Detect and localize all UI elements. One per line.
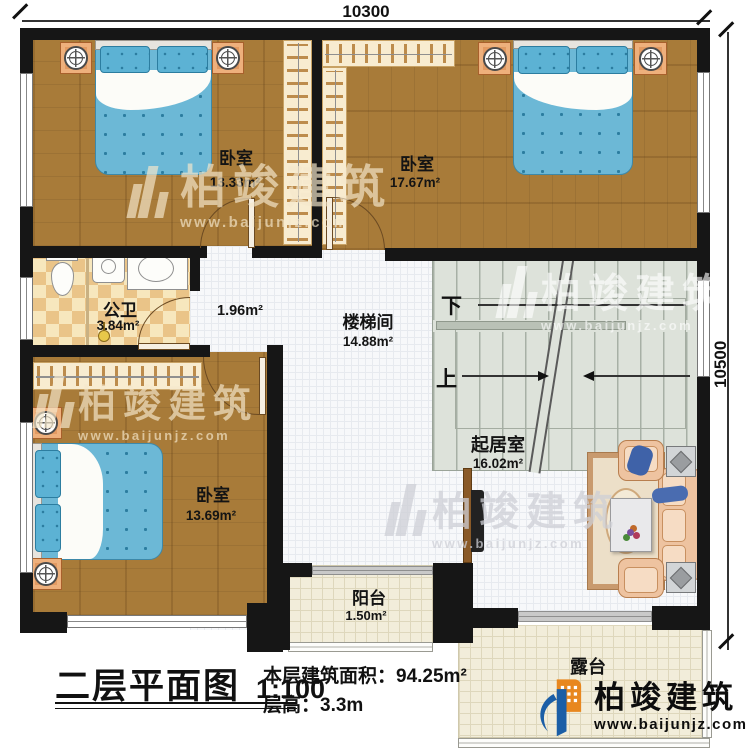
bathroom-area: 3.84m² xyxy=(78,319,158,333)
window-bathroom-left xyxy=(20,277,33,340)
stair-void-outline xyxy=(455,298,686,429)
stairwell-area: 14.88m² xyxy=(328,335,408,349)
window-stairwell-right xyxy=(697,280,710,377)
brand-name: 柏竣建筑 xyxy=(594,682,747,713)
bedroom2-area: 17.67m² xyxy=(375,176,455,190)
bedroom2-nightstand-left xyxy=(478,42,511,75)
balcony-railing xyxy=(288,642,433,652)
title-underline xyxy=(55,702,297,709)
window-bedroom2-right xyxy=(697,72,710,213)
lamp-icon xyxy=(34,562,58,586)
wall-top xyxy=(20,28,710,40)
wall-bedroom1-bottom xyxy=(20,246,207,258)
terrace-label: 露台 xyxy=(548,658,628,677)
bedroom1-label: 卧室 xyxy=(196,150,276,168)
bedroom3-closet xyxy=(33,362,202,390)
living-area: 16.02m² xyxy=(456,457,540,471)
wall-hall-top xyxy=(252,246,322,258)
stair-arrowhead-right xyxy=(538,371,549,381)
bedroom2-nightstand-right xyxy=(634,42,667,75)
bedroom1-bed xyxy=(95,40,212,175)
stair-down-label: 下 xyxy=(441,290,462,320)
wall-right-1 xyxy=(697,28,710,72)
brand-logo: 柏竣建筑 www.baijunjz.com xyxy=(534,676,747,738)
floor-plan-canvas: 卧室 13.33m² 卧室 17.67m² 卧室 13.69m² 公卫 3.84… xyxy=(0,0,750,751)
washer-drum-icon xyxy=(101,259,116,274)
pillar-bedroom3-corner xyxy=(247,603,283,652)
stair-up-label: 上 xyxy=(436,363,457,393)
sliding-door-balcony xyxy=(312,566,433,575)
bedroom1-door-leaf xyxy=(248,198,255,248)
wall-living-corner xyxy=(652,606,710,630)
coffee-table xyxy=(610,498,652,552)
column-balcony-right xyxy=(433,563,473,643)
armchair-bottom xyxy=(618,558,664,598)
lamp-icon xyxy=(639,47,663,71)
bedroom2-closet-top xyxy=(322,40,455,67)
wall-right-2 xyxy=(697,213,710,280)
floor-height-note: 层高：3.3m xyxy=(263,690,363,717)
side-table-top xyxy=(666,446,696,477)
bedroom3-nightstand-top xyxy=(30,407,62,439)
side-table-bottom xyxy=(666,562,696,593)
bedroom3-nightstand-bottom xyxy=(30,558,62,590)
hall-area: 1.96m² xyxy=(200,304,280,319)
wall-right-3 xyxy=(697,377,710,620)
brand-logo-mark-icon xyxy=(534,676,586,738)
wall-left-2 xyxy=(20,207,33,277)
stair-direction-line-up-b xyxy=(594,375,690,377)
lamp-icon xyxy=(34,411,58,435)
wall-left-1 xyxy=(20,28,33,73)
wall-bedroom2-bottom xyxy=(385,248,697,261)
bedroom3-door-leaf xyxy=(259,357,266,415)
bathroom-door-leaf xyxy=(138,343,190,350)
lamp-icon xyxy=(216,46,240,70)
stair-direction-line-up-a xyxy=(462,375,538,377)
bedroom2-door-leaf xyxy=(326,197,333,250)
dimension-tick xyxy=(696,9,712,25)
bedroom1-nightstand-right xyxy=(212,42,244,74)
stair-handrail xyxy=(436,321,626,330)
bedroom3-bed xyxy=(30,443,163,560)
dimension-tick xyxy=(12,3,28,19)
lamp-icon xyxy=(64,46,88,70)
balcony-area: 1.50m² xyxy=(326,609,406,623)
bedroom3-area: 13.69m² xyxy=(171,509,251,523)
bedroom1-closet xyxy=(283,40,312,245)
tv-icon xyxy=(471,490,484,552)
window-bedroom3-left xyxy=(20,422,33,573)
bedroom1-area: 13.33m² xyxy=(195,176,275,190)
lamp-icon xyxy=(483,47,507,71)
balcony-label: 阳台 xyxy=(329,590,409,608)
living-label: 起居室 xyxy=(452,436,544,455)
floor-area-note: 本层建筑面积：94.25m² xyxy=(263,661,467,688)
bedroom1-nightstand-left xyxy=(60,42,92,74)
bedroom2-label: 卧室 xyxy=(377,156,457,174)
dimension-tick xyxy=(718,21,734,37)
flower-vase-icon xyxy=(627,529,634,536)
sink-basin-icon xyxy=(138,255,174,282)
window-bedroom3-bottom xyxy=(67,615,247,628)
stair-direction-line-down xyxy=(478,304,686,306)
wall-living-bottom xyxy=(473,608,518,628)
bedroom3-label: 卧室 xyxy=(173,487,253,505)
dimension-tick xyxy=(718,633,734,649)
dimension-right-value: 10500 xyxy=(711,328,731,400)
wall-bedroom3-bottom xyxy=(20,612,67,633)
pillar-balcony-left xyxy=(285,563,312,577)
terrace-railing-bottom xyxy=(458,738,710,748)
wall-bedrooms-divider xyxy=(312,40,322,246)
stair-arrowhead-left xyxy=(583,371,594,381)
wall-bedroom3-right xyxy=(267,345,283,633)
brand-url: www.baijunjz.com xyxy=(594,716,747,733)
dimension-top-value: 10300 xyxy=(330,2,402,22)
bedroom2-bed xyxy=(513,40,633,175)
sliding-door-terrace xyxy=(518,611,652,622)
window-bedroom1-left xyxy=(20,73,33,207)
wall-bathroom-right xyxy=(190,246,200,291)
stairwell-label: 楼梯间 xyxy=(326,314,410,332)
